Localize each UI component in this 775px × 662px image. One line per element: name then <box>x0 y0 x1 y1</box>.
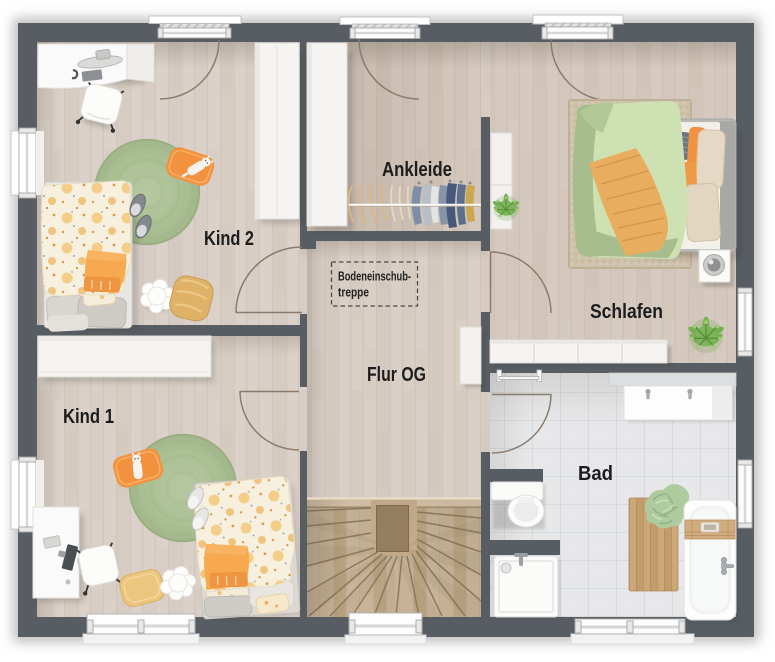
svg-text:Bodeneinschub-: Bodeneinschub- <box>338 270 411 284</box>
svg-text:Ankleide: Ankleide <box>382 158 452 181</box>
svg-text:Kind 2: Kind 2 <box>204 227 254 250</box>
svg-text:treppe: treppe <box>338 286 369 300</box>
svg-text:Kind 1: Kind 1 <box>63 405 114 428</box>
svg-text:Bad: Bad <box>578 462 613 485</box>
svg-text:Schlafen: Schlafen <box>590 300 663 323</box>
svg-text:Flur OG: Flur OG <box>367 363 426 386</box>
